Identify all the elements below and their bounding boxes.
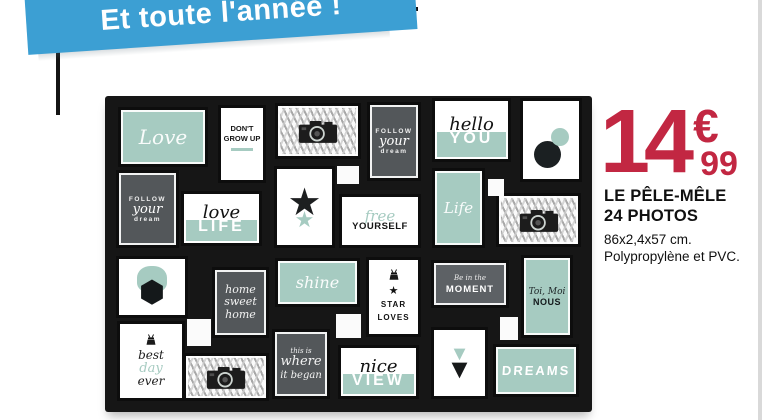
promo-banner-label: Et toute l'année ! <box>99 0 342 37</box>
print-text: where <box>280 355 321 370</box>
product-material: Polypropylène et PVC. <box>604 249 740 266</box>
accent-bar <box>231 148 253 151</box>
print-text: it began <box>280 370 322 382</box>
print-text: ever <box>138 375 165 388</box>
photo-love-life: love LIFE <box>181 191 262 246</box>
photo-free-yourself: free YOURSELF <box>339 194 421 248</box>
photo-double-triangle: ▼ ▼ <box>431 327 488 399</box>
print-text-caps: YOURSELF <box>352 221 408 232</box>
triangle-down-icon: ▼ <box>446 356 473 383</box>
product-name-line2: 24 PHOTOS <box>604 206 740 226</box>
product-info: LE PÊLE-MÊLE 24 PHOTOS 86x2,4x57 cm. Pol… <box>604 186 740 266</box>
print-text: day <box>139 362 162 376</box>
print-text: dream <box>380 148 407 155</box>
print-text-small: Toi, Moi <box>529 287 566 297</box>
photo-camera-print-2 <box>496 193 581 247</box>
print-text-small: Be in the <box>454 274 486 282</box>
print-text: best <box>138 349 164 362</box>
camera-icon <box>519 207 559 233</box>
photo-love: Love <box>118 107 208 167</box>
filler-frame-3 <box>187 319 211 346</box>
price-euros: 14 <box>600 104 688 181</box>
photo-geo-shapes: ⬢ <box>116 256 188 318</box>
print-band-top: nice <box>343 350 414 374</box>
binder-clip-icon <box>388 269 400 282</box>
catalog-page: Et toute l'année ! LoveDON'TGROW UP FOLL… <box>0 0 762 420</box>
price: 14 € 99 <box>600 104 738 181</box>
print-text: home <box>225 309 256 322</box>
photo-where-it-began: this iswhereit began <box>272 329 330 399</box>
print-text-caps: VIEW <box>352 372 405 390</box>
print-text-caps: MOMENT <box>446 284 494 295</box>
print-band-bottom: VIEW <box>343 374 414 394</box>
binder-clip-icon <box>145 334 157 347</box>
photo-shine: shine <box>275 258 360 307</box>
print-text-caps: NOUS <box>533 297 561 307</box>
filler-frame-2 <box>488 179 504 196</box>
product-image: LoveDON'TGROW UP FOLLOW your dreamhello … <box>105 96 592 412</box>
print-text: dream <box>134 216 161 223</box>
photo-double-star: ★ ★ <box>274 166 335 248</box>
print-text: Love <box>139 125 187 149</box>
print-text-caps: LIFE <box>198 218 245 236</box>
photo-star-loves: ★ STARLOVES <box>366 257 421 337</box>
star-icon: ★ <box>295 209 315 231</box>
photo-dont-grow-up: DON'TGROW UP <box>218 105 266 183</box>
photo-camera-print-1 <box>275 103 361 159</box>
price-fraction: € 99 <box>693 106 738 181</box>
print-band-top: love <box>186 196 257 220</box>
photo-toi-moi-nous: Toi, Moi NOUS <box>521 255 573 338</box>
photo-camera-print-3 <box>183 353 269 401</box>
photo-life: Life <box>432 168 485 248</box>
camera-icon <box>206 364 246 390</box>
filler-frame-1 <box>337 166 359 184</box>
print-band-top: hello <box>437 103 506 132</box>
filler-frame-5 <box>500 317 518 340</box>
filler-frame-4 <box>336 314 361 338</box>
offer-tile[interactable]: LoveDON'TGROW UP FOLLOW your dreamhello … <box>0 0 762 420</box>
photo-hello-you: hello YOU <box>432 98 511 162</box>
price-currency: € <box>693 106 738 146</box>
photo-dreams: DREAMS <box>493 344 579 397</box>
print-band-bottom: YOU <box>437 132 506 157</box>
photo-nice-view: nice VIEW <box>338 345 419 399</box>
print-text: DREAMS <box>501 363 570 378</box>
print-text: Life <box>444 199 473 217</box>
product-name-line1: LE PÊLE-MÊLE <box>604 186 740 206</box>
photo-two-dots <box>520 98 582 182</box>
print-text: your <box>379 134 409 149</box>
star-icon: ★ <box>389 286 399 297</box>
photo-best-day-ever: bestdayever <box>117 321 185 401</box>
hexagon-icon: ⬢ <box>139 278 165 308</box>
print-band-bottom: LIFE <box>186 220 257 241</box>
print-text: STARLOVES <box>377 299 409 325</box>
photo-be-in-the-moment: Be in the MOMENT <box>431 260 509 308</box>
circle-icon <box>551 128 569 146</box>
print-text: shine <box>296 273 339 292</box>
price-cents: 99 <box>700 147 738 181</box>
print-text: your <box>133 202 163 217</box>
product-dimensions: 86x2,4x57 cm. <box>604 232 740 249</box>
photo-follow-your-dream-2: FOLLOW your dream <box>116 170 179 248</box>
print-text: DON'TGROW UP <box>224 124 261 144</box>
camera-icon <box>298 118 338 144</box>
print-text-caps: YOU <box>450 130 494 148</box>
photo-home-sweet-home: homesweethome <box>212 267 269 338</box>
photo-follow-your-dream-1: FOLLOW your dream <box>367 102 421 181</box>
print-text: sweet <box>224 296 257 309</box>
